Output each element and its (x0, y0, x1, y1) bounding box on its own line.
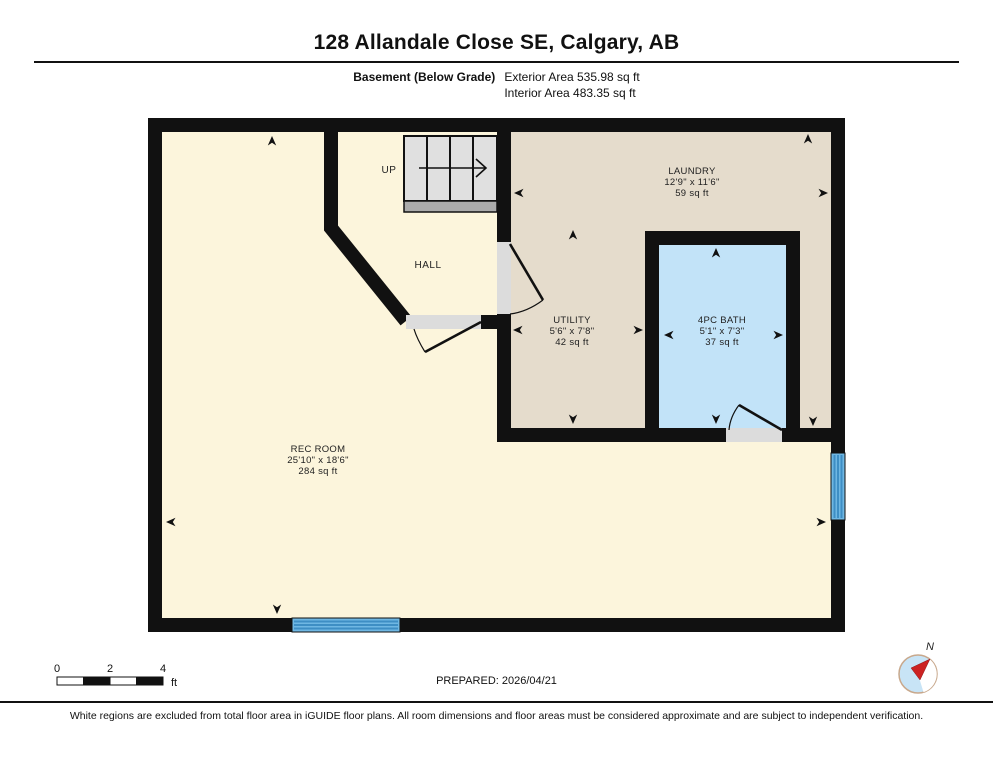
north-label: N (926, 641, 934, 653)
compass-icon: N (890, 636, 950, 698)
hall-label: HALL (414, 260, 441, 271)
room-area: 284 sq ft (298, 466, 337, 477)
room-dims: 5'1" x 7'3" (700, 326, 745, 337)
room-name: REC ROOM (291, 444, 346, 455)
room-utility: UTILITY 5'6" x 7'8" 42 sq ft (550, 315, 595, 348)
room-name: UTILITY (553, 315, 591, 326)
room-area: 37 sq ft (705, 337, 739, 348)
prepared-date: PREPARED: 2026/04/21 (0, 675, 993, 687)
room-area: 42 sq ft (555, 337, 589, 348)
header-divider (34, 61, 959, 63)
floorplan-page: 128 Allandale Close SE, Calgary, AB Base… (0, 0, 993, 768)
room-name: 4PC BATH (698, 315, 746, 326)
page-title: 128 Allandale Close SE, Calgary, AB (0, 31, 993, 55)
interior-area: Interior Area 483.35 sq ft (504, 85, 639, 101)
room-name: LAUNDRY (668, 166, 716, 177)
room-dims: 12'9" x 11'6" (664, 177, 719, 188)
staircase (404, 136, 497, 212)
room-dims: 25'10" x 18'6" (287, 455, 349, 466)
scale-tick-2: 2 (107, 663, 113, 675)
window-right (831, 453, 845, 520)
floor-label: Basement (Below Grade) (353, 69, 495, 85)
window-bottom (292, 618, 400, 632)
room-area: 59 sq ft (675, 188, 709, 199)
exterior-area: Exterior Area 535.98 sq ft (504, 69, 639, 85)
scale-tick-4: 4 (160, 663, 166, 675)
stairs-up-label: UP (382, 165, 397, 176)
disclaimer-text: White regions are excluded from total fl… (0, 710, 993, 722)
footer-divider (0, 701, 993, 703)
floor-summary: Basement (Below Grade) Exterior Area 535… (0, 69, 993, 101)
scale-tick-0: 0 (54, 663, 60, 675)
room-dims: 5'6" x 7'8" (550, 326, 595, 337)
floorplan-drawing: UP HALL LAUNDRY 12'9" x 11'6" 59 sq ft U… (0, 100, 993, 650)
